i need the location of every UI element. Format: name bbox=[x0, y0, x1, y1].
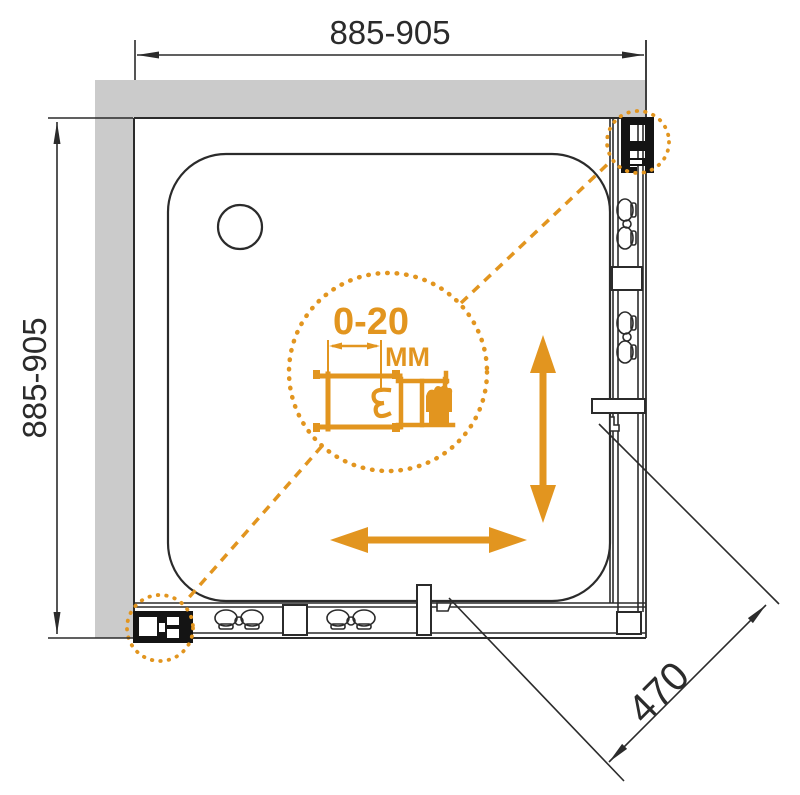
adjustment-range-label: 0-20 bbox=[333, 301, 409, 343]
corner-junction-block bbox=[617, 612, 641, 634]
dimension-top-width: 885-905 bbox=[135, 14, 644, 80]
door-handle-bottom bbox=[417, 585, 431, 635]
top-width-label: 885-905 bbox=[329, 14, 450, 51]
mm-unit-label: MM bbox=[385, 342, 430, 372]
door-handle-right bbox=[592, 399, 645, 413]
drain-circle bbox=[218, 205, 262, 249]
shower-enclosure-plan-drawing: 0-20 MM bbox=[0, 0, 800, 795]
door-latch-bottom bbox=[437, 603, 451, 611]
left-depth-label: 885-905 bbox=[16, 317, 53, 438]
diagonal-dimension-label: 470 bbox=[620, 654, 698, 732]
wall-left bbox=[95, 80, 134, 638]
wall-top bbox=[95, 80, 645, 118]
roller-carriage-right-2 bbox=[617, 312, 636, 363]
wall-profile-bottom-left bbox=[133, 611, 193, 643]
roller-carriage-bottom-1 bbox=[215, 610, 263, 629]
roller-carriage-bottom-2 bbox=[327, 610, 375, 629]
drawing-canvas: 0-20 MM bbox=[0, 0, 800, 795]
roller-carriage-right-1 bbox=[617, 199, 636, 249]
panel-bracket-right bbox=[612, 267, 642, 290]
panel-bracket-bottom bbox=[283, 605, 307, 635]
